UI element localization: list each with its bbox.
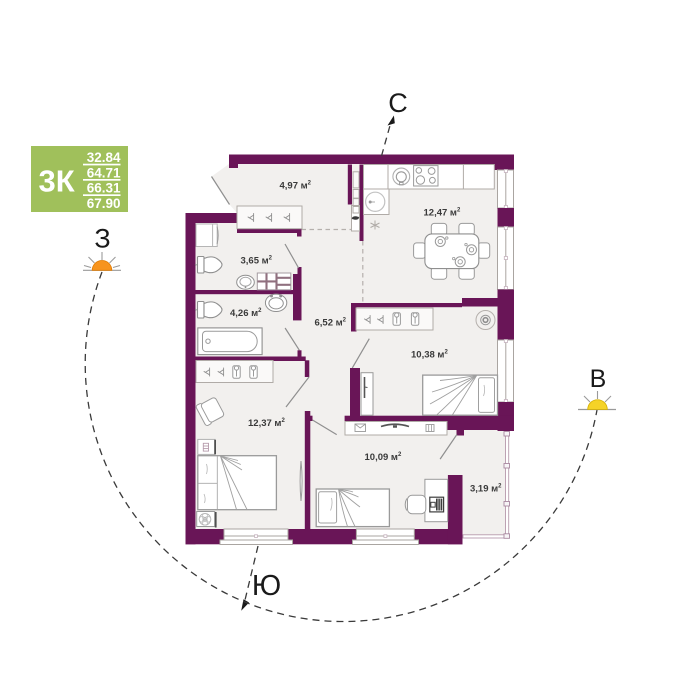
svg-text:12,37 м2: 12,37 м2 <box>248 418 285 429</box>
svg-text:В: В <box>590 365 607 393</box>
svg-text:67.90: 67.90 <box>87 196 121 211</box>
svg-text:4,97 м2: 4,97 м2 <box>280 181 312 192</box>
svg-text:10,38 м2: 10,38 м2 <box>411 350 448 361</box>
svg-text:66.31: 66.31 <box>87 181 121 196</box>
svg-text:3,19 м2: 3,19 м2 <box>470 484 502 495</box>
svg-text:4,26 м2: 4,26 м2 <box>230 308 262 319</box>
svg-text:3К: 3К <box>39 164 75 199</box>
svg-text:Ю: Ю <box>252 570 281 602</box>
svg-text:С: С <box>388 88 408 118</box>
svg-text:3,65 м2: 3,65 м2 <box>241 256 273 267</box>
svg-text:З: З <box>94 224 110 254</box>
svg-text:12,47 м2: 12,47 м2 <box>424 208 461 219</box>
svg-text:64.71: 64.71 <box>87 165 121 180</box>
svg-text:32.84: 32.84 <box>87 150 121 165</box>
svg-text:6,52 м2: 6,52 м2 <box>315 318 347 329</box>
svg-text:10,09 м2: 10,09 м2 <box>365 452 402 463</box>
